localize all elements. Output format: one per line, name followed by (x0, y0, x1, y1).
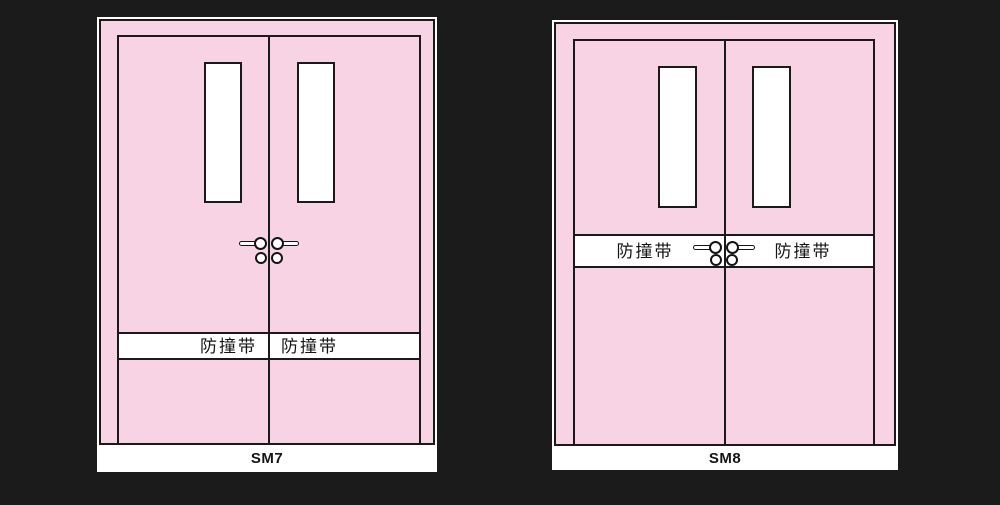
bumper-label-right: 防撞带 (723, 236, 873, 266)
lock-knob-right-icon (271, 252, 283, 264)
vision-panel-right (297, 62, 335, 203)
handle-rosette-right-icon (726, 241, 739, 254)
meeting-stile-line (724, 39, 726, 446)
lock-knob-left-icon (255, 252, 267, 264)
lock-knob-left-icon (710, 254, 722, 266)
handle-rosette-left-icon (254, 237, 267, 250)
door-figure-sm7: 防撞带 防撞带 SM7 (97, 17, 437, 472)
bumper-label-right: 防撞带 (270, 334, 419, 358)
vision-panel-left (658, 66, 697, 208)
handle-rosette-right-icon (271, 237, 284, 250)
vision-panel-right (752, 66, 791, 208)
handle-rosette-left-icon (709, 241, 722, 254)
drawing-canvas: 防撞带 防撞带 SM7 防撞带 防撞带 (0, 0, 1000, 505)
door-figure-sm8: 防撞带 防撞带 SM8 (552, 20, 898, 470)
bumper-label-left: 防撞带 (575, 236, 723, 266)
model-label: SM7 (97, 445, 437, 472)
model-label: SM8 (552, 446, 898, 470)
meeting-stile-line (268, 35, 270, 445)
lock-knob-right-icon (726, 254, 738, 266)
bumper-label-left: 防撞带 (119, 334, 270, 358)
vision-panel-left (204, 62, 242, 203)
